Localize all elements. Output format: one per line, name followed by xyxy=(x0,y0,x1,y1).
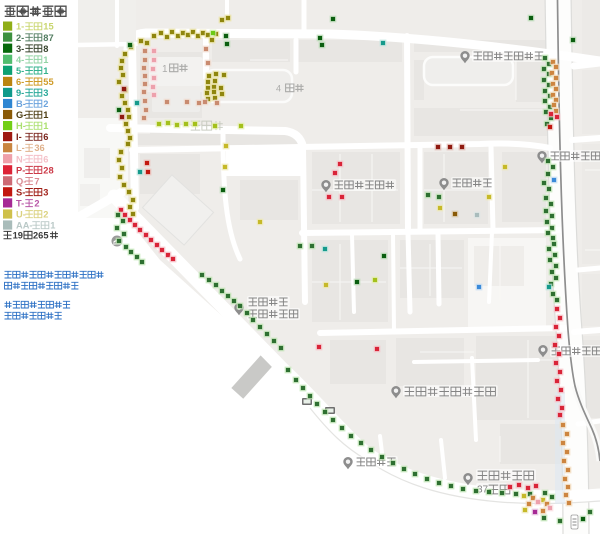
svg-text:AA-: AA- xyxy=(16,221,33,231)
svg-text:28: 28 xyxy=(43,165,53,175)
svg-text:19: 19 xyxy=(13,230,23,240)
svg-text:N-: N- xyxy=(16,154,26,164)
svg-text:U-: U- xyxy=(16,210,26,220)
svg-text:I-: I- xyxy=(16,132,22,142)
svg-text:1: 1 xyxy=(50,221,55,231)
svg-text:55: 55 xyxy=(43,77,53,87)
svg-text:265: 265 xyxy=(33,230,49,240)
svg-text:H-: H- xyxy=(16,121,26,131)
svg-text:5-: 5- xyxy=(16,66,24,76)
svg-text:6: 6 xyxy=(43,132,48,142)
svg-text:4-: 4- xyxy=(16,55,24,65)
svg-text:Q-: Q- xyxy=(16,176,26,186)
svg-text:1-: 1- xyxy=(16,22,24,32)
svg-text:1: 1 xyxy=(162,64,168,75)
svg-text:2: 2 xyxy=(43,210,48,220)
svg-text:4: 4 xyxy=(276,84,281,94)
svg-text:2-: 2- xyxy=(16,33,24,43)
svg-text:1: 1 xyxy=(43,55,48,65)
svg-text:1: 1 xyxy=(43,66,48,76)
svg-text:B-: B- xyxy=(16,99,26,109)
svg-text:6: 6 xyxy=(43,154,48,164)
svg-text:S-: S- xyxy=(16,187,25,197)
svg-text:1: 1 xyxy=(43,121,48,131)
svg-text:3: 3 xyxy=(43,187,48,197)
svg-text:87: 87 xyxy=(43,33,53,43)
svg-text:P-: P- xyxy=(16,165,25,175)
svg-text:9-: 9- xyxy=(16,88,24,98)
svg-text:3: 3 xyxy=(43,88,48,98)
svg-text:L-: L- xyxy=(16,143,25,153)
svg-text:2: 2 xyxy=(34,199,39,209)
svg-text:15: 15 xyxy=(43,22,53,32)
svg-text:G-: G- xyxy=(16,110,26,120)
svg-text:1: 1 xyxy=(43,110,48,120)
svg-text:3-: 3- xyxy=(16,44,24,54)
svg-text:2: 2 xyxy=(43,99,48,109)
svg-text:8: 8 xyxy=(43,44,48,54)
svg-text:6-: 6- xyxy=(16,77,24,87)
svg-text:36: 36 xyxy=(34,143,44,153)
svg-text:T-: T- xyxy=(16,199,24,209)
svg-text:7: 7 xyxy=(34,176,39,186)
